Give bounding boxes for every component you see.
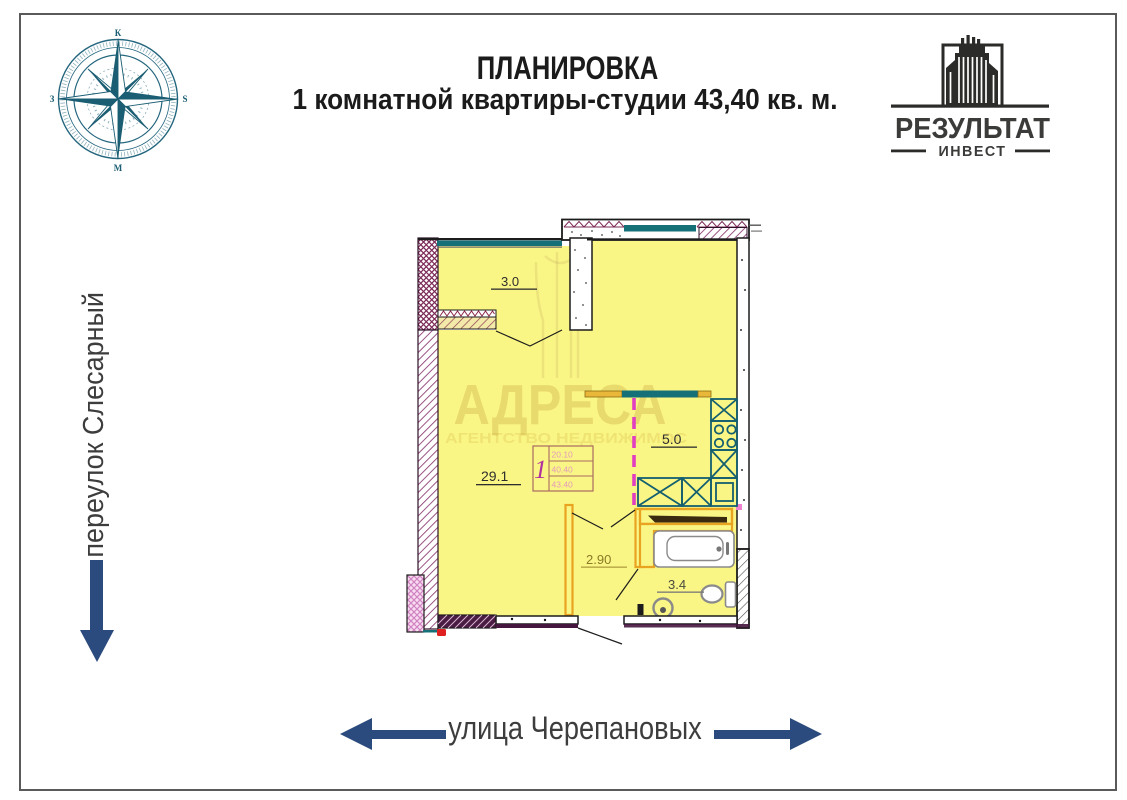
svg-text:М: М [114, 163, 123, 173]
svg-text:29.1: 29.1 [481, 468, 508, 484]
svg-text:3.0: 3.0 [501, 274, 519, 289]
svg-text:5.0: 5.0 [662, 431, 682, 447]
svg-text:1: 1 [534, 455, 547, 484]
svg-text:20.10: 20.10 [552, 450, 574, 460]
svg-text:К: К [115, 28, 122, 38]
svg-text:43.40: 43.40 [552, 480, 574, 490]
svg-text:2.90: 2.90 [586, 552, 611, 567]
svg-text:З: З [50, 94, 55, 104]
svg-text:АГЕНТСТВО НЕДВИЖИМОС: АГЕНТСТВО НЕДВИЖИМОС [445, 430, 687, 447]
svg-text:3.4: 3.4 [668, 577, 686, 592]
svg-text:S: S [182, 94, 187, 104]
svg-text:40.40: 40.40 [552, 465, 574, 475]
svg-text:РЕЗУЛЬТАТ: РЕЗУЛЬТАТ [895, 113, 1050, 145]
svg-text:ИНВЕСТ: ИНВЕСТ [939, 144, 1007, 160]
